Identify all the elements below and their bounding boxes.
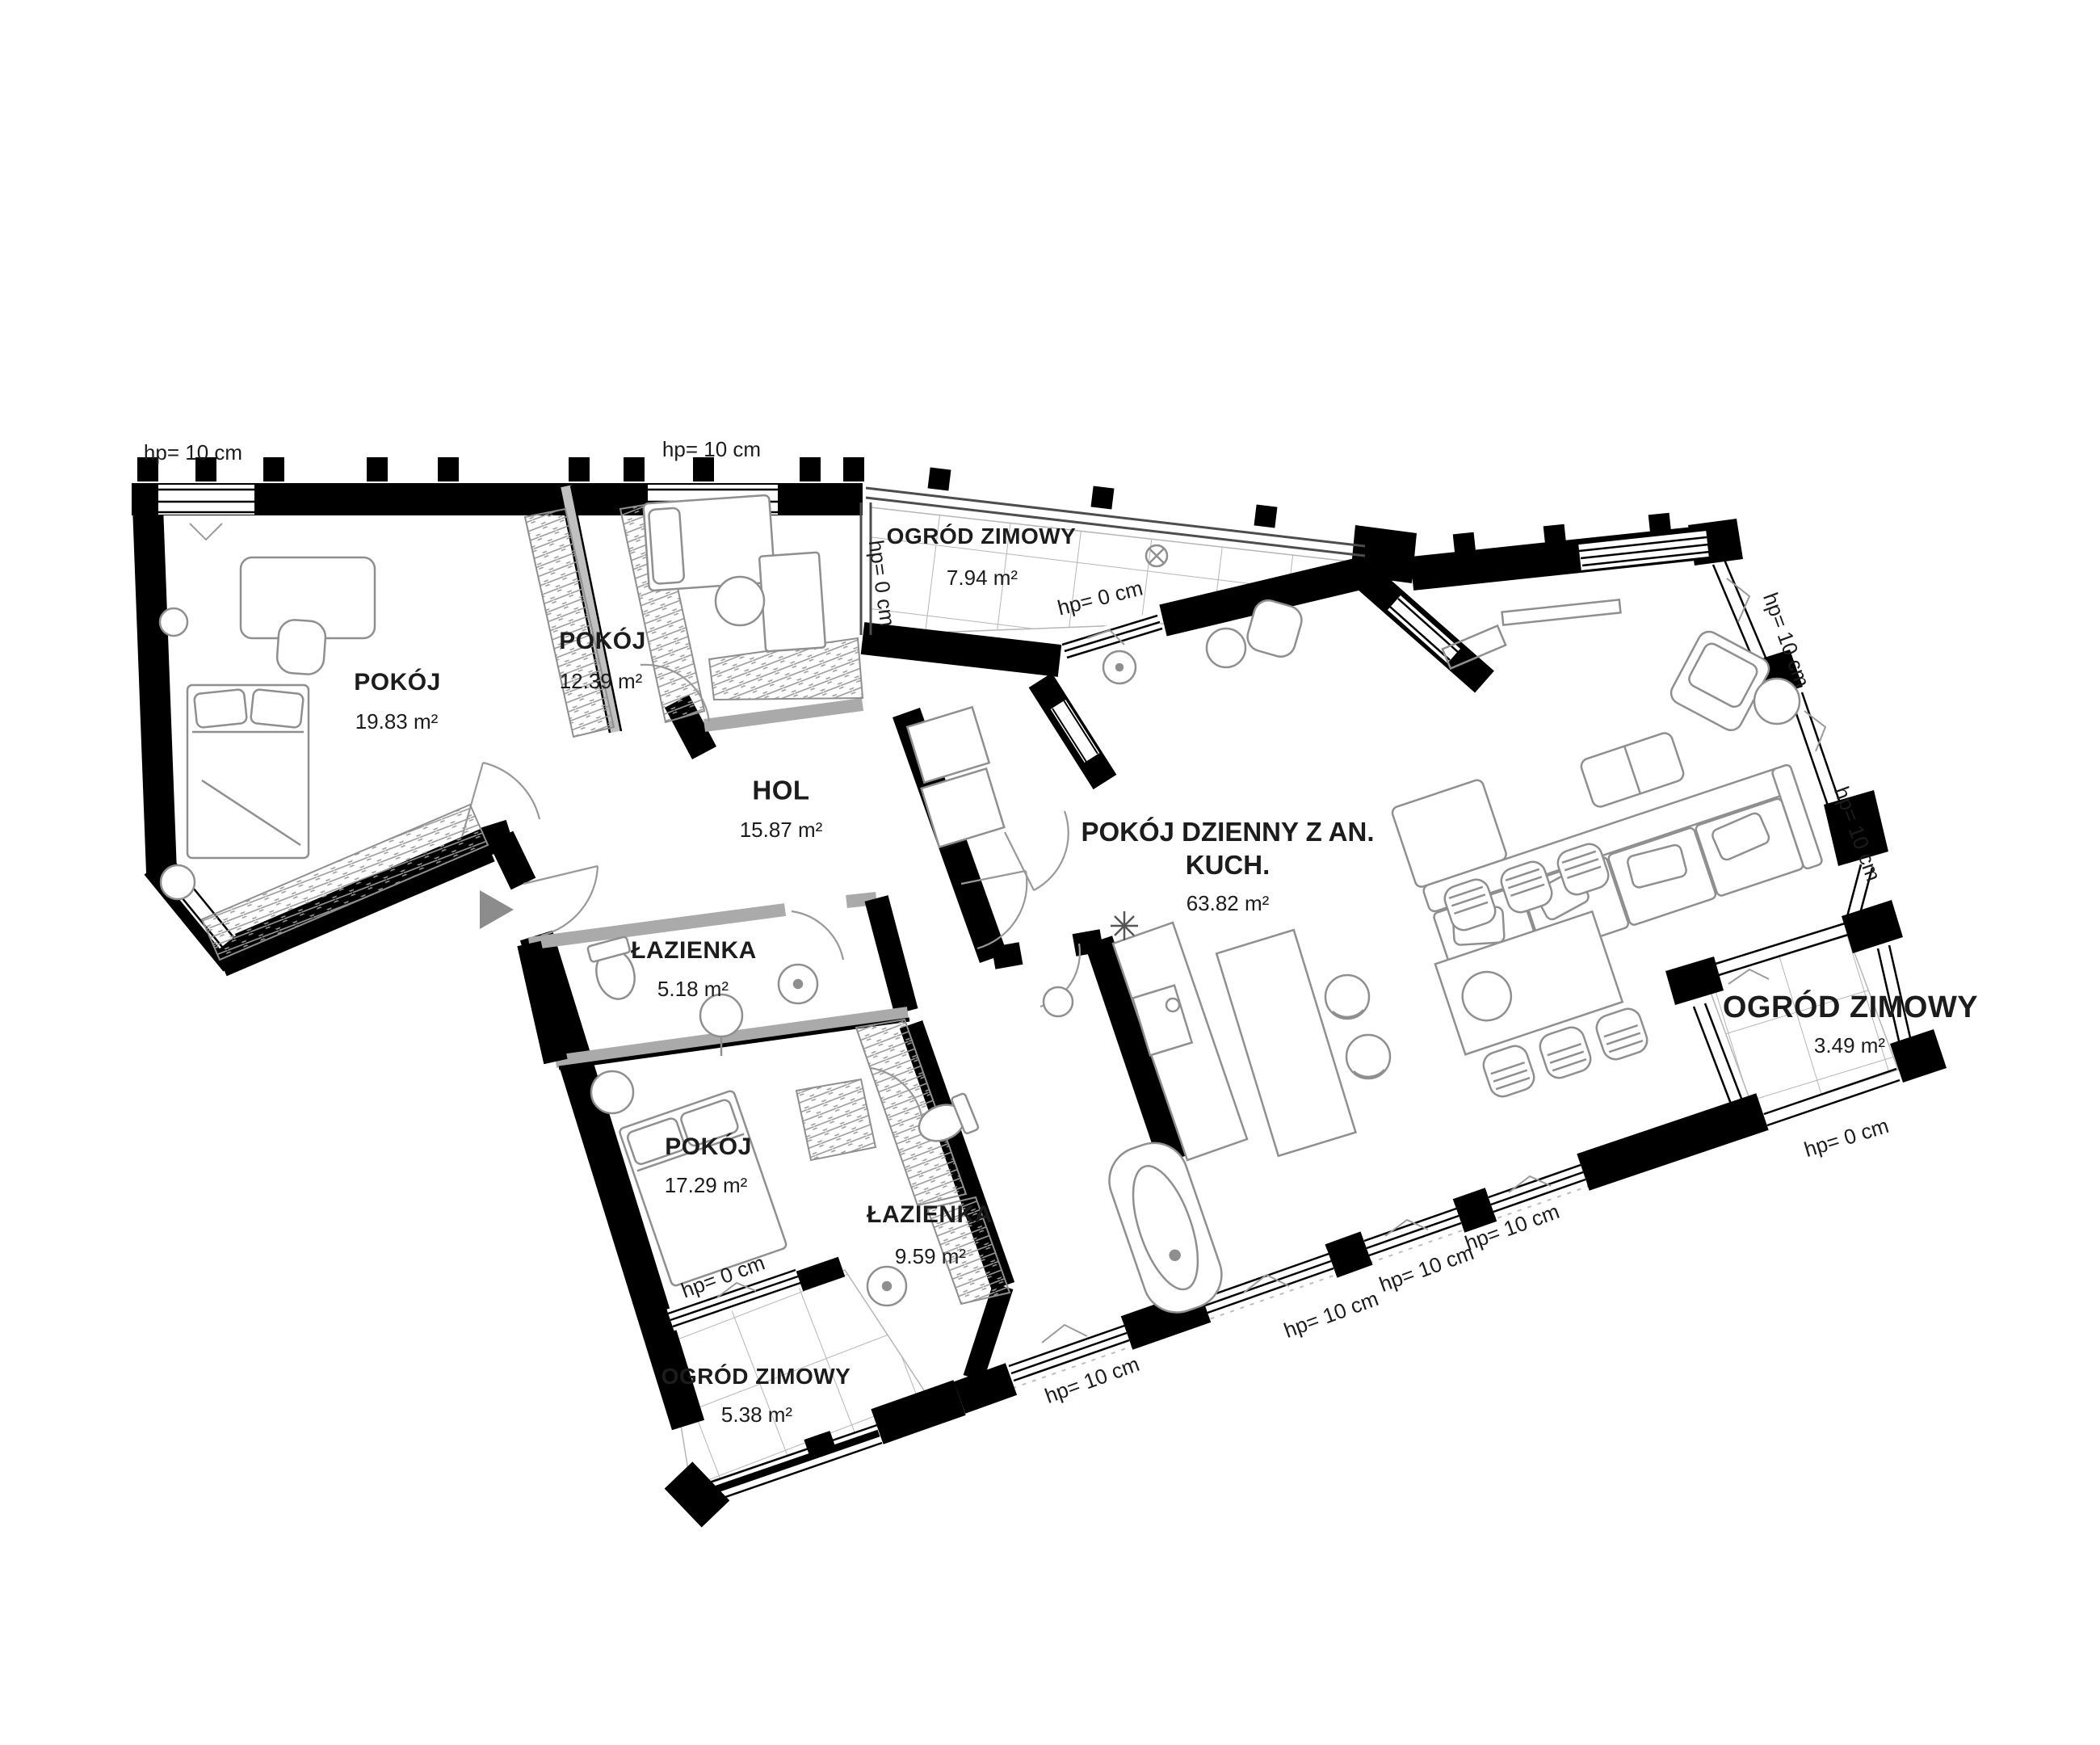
bedside-table-2 [161,865,195,899]
room-area-ogrod-dolny: 5.38 m² [721,1404,792,1425]
room-label-pokoj-dzienny-line1: POKÓJ DZIENNY Z AN. [1081,815,1374,848]
sill-label-top: hp= 10 cm [662,439,761,460]
bedside-table-1 [160,608,187,636]
room-label-lazienka-2: ŁAZIENKA [867,1203,993,1227]
room-area-pokoj-1: 19.83 m² [355,711,439,732]
room-area-lazienka-2: 9.59 m² [895,1246,966,1267]
floor-plan-page: POKÓJ 19.83 m² POKÓJ 12.39 m² HOL 15.87 … [0,0,2100,1745]
floor-plan-drawing [0,0,2100,1745]
room-label-pokoj-dzienny-line2: KUCH. [1081,848,1374,881]
armchair [1667,628,1773,734]
bedside-table-3 [591,1071,633,1113]
room-label-pokoj-1: POKÓJ [354,671,441,695]
room-area-pokoj-3: 17.29 m² [665,1175,748,1196]
room-label-lazienka-1: ŁAZIENKA [631,939,757,963]
room-label-pokoj-dzienny: POKÓJ DZIENNY Z AN. KUCH. [1081,815,1374,882]
entrance-arrow-icon [480,890,514,929]
sofa [1391,684,1823,988]
room-label-pokoj-2: POKÓJ [559,629,646,654]
room-label-hol: HOL [752,777,809,804]
side-table [1207,629,1245,667]
bathtub [1100,1133,1231,1321]
tv-board [1502,599,1621,624]
room-label-ogrod-dolny: OGRÓD ZIMOWY [661,1365,851,1388]
room-area-lazienka-1: 5.18 m² [657,978,729,999]
bed-1 [187,685,309,858]
room-area-hol: 15.87 m² [740,819,823,840]
room-area-ogrod-gorny: 7.94 m² [947,567,1018,588]
room-label-ogrod-gorny: OGRÓD ZIMOWY [887,525,1077,548]
bed-2 [643,495,775,591]
room-area-pokoj-2: 12.39 m² [560,671,643,692]
windows [158,485,1913,1509]
room-area-pokoj-dzienny: 63.82 m² [1186,893,1270,914]
room-label-ogrod-prawy: OGRÓD ZIMOWY [1723,992,1978,1023]
ottoman [1579,731,1686,809]
room-area-ogrod-prawy: 3.49 m² [1814,1035,1885,1056]
sill-label-top-left: hp= 10 cm [144,442,242,463]
desk-1 [241,557,375,675]
room-label-pokoj-3: POKÓJ [665,1135,752,1159]
washbasin-2 [1044,987,1073,1016]
